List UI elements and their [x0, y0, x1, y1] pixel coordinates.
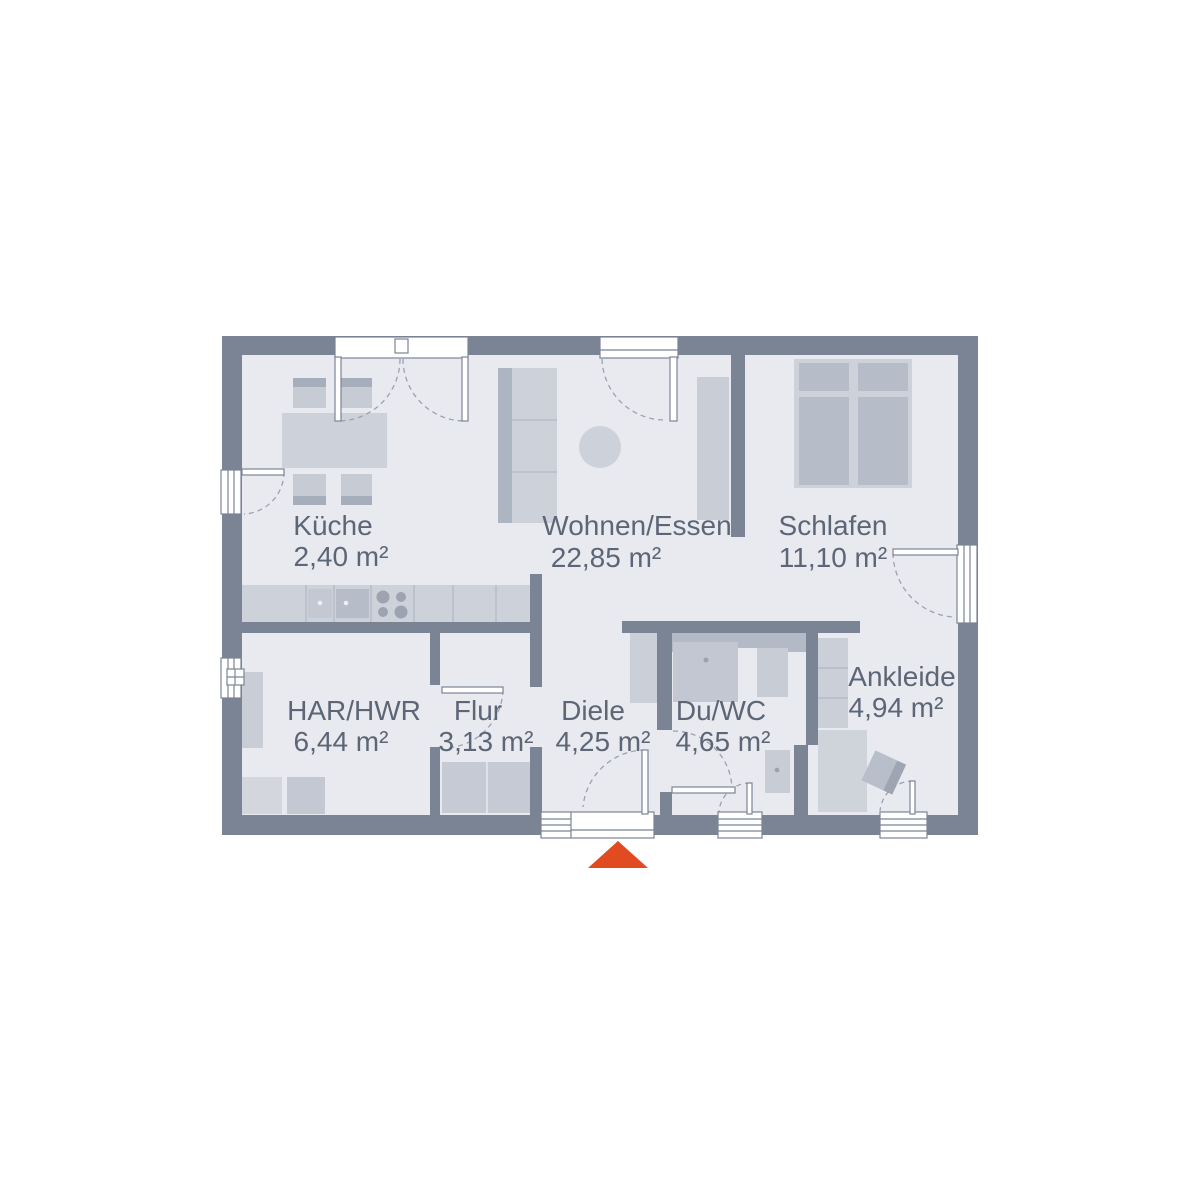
wall-outer-left — [222, 336, 242, 835]
wall-har-flur-upper — [430, 633, 440, 685]
wall-duwc-north — [622, 621, 860, 633]
basin-dot — [344, 601, 349, 606]
round-table — [579, 426, 621, 468]
room-label-wohnen-essen: Wohnen/Essen — [542, 512, 731, 540]
room-area-har-hwr: 6,44 m² — [294, 728, 389, 756]
wohnen-door-frame — [600, 337, 678, 358]
bed-pillow-right — [858, 363, 908, 391]
room-area-du-wc: 4,65 m² — [676, 728, 771, 756]
room-area-wohnen-essen: 22,85 m² — [551, 544, 662, 572]
har-appliance-2 — [287, 777, 325, 814]
flur-cabinet-2 — [488, 762, 530, 813]
kueche-window-frame — [221, 470, 241, 514]
wall-duwc-west — [657, 633, 672, 730]
room-label-diele: Diele — [561, 697, 625, 725]
sink-drain-dot — [318, 601, 323, 606]
kitchen-sink-basin — [336, 589, 369, 618]
bed-mattress-right — [858, 397, 908, 485]
wall-flur-east-lower — [530, 747, 542, 815]
wall-duwc-west-stub — [660, 792, 672, 815]
toilet-dot — [775, 768, 780, 773]
room-label-har-hwr: HAR/HWR — [287, 697, 421, 725]
duwc-window-leaf — [747, 783, 752, 814]
room-area-kueche: 2,40 m² — [294, 543, 389, 571]
diele-wardrobe — [630, 633, 657, 703]
room-area-diele: 4,25 m² — [556, 728, 651, 756]
har-tall-unit — [242, 672, 263, 748]
duwc-floor-notch — [738, 648, 757, 697]
wall-flur-east-upper — [530, 574, 542, 687]
wall-wohnen-schlafen — [731, 355, 745, 537]
sideboard — [697, 377, 729, 520]
ankleide-window-leaf — [910, 781, 915, 814]
room-area-schlafen: 11,10 m² — [779, 544, 887, 572]
room-label-kueche: Küche — [293, 512, 372, 540]
washbasin-cabinet — [757, 648, 788, 697]
floor-plan: Küche 2,40 m² Wohnen/Essen 22,85 m² Schl… — [0, 0, 1200, 1200]
flur-cabinet-1 — [442, 762, 486, 813]
south-entrance-arrow-icon — [588, 841, 648, 868]
shelf-unit-side — [498, 368, 512, 523]
ankleide-shelf — [818, 638, 848, 728]
entrance-door-leaf — [642, 750, 648, 814]
room-label-flur: Flur — [454, 697, 502, 725]
ankleide-wardrobe — [818, 730, 867, 812]
wohnen-door-leaf — [670, 357, 677, 421]
room-label-du-wc: Du/WC — [676, 697, 766, 725]
french-door-leaf-left — [335, 357, 341, 421]
room-area-flur: 3,13 m² — [439, 728, 534, 756]
shower — [673, 642, 738, 702]
french-door-center-symbol — [395, 339, 408, 353]
room-area-ankleide: 4,94 m² — [849, 694, 944, 722]
french-door-leaf-right — [462, 357, 468, 421]
wall-har-flur-lower — [430, 747, 440, 815]
bed-mattress-left — [799, 397, 849, 485]
floor-plan-drawing — [0, 0, 1200, 1200]
duwc-door-leaf — [672, 787, 735, 793]
kitchen-counter — [242, 585, 530, 622]
schlafen-door-frame — [957, 545, 977, 623]
schlafen-door-leaf — [893, 549, 958, 555]
wall-duwc-ankleide-upper — [806, 633, 818, 745]
wall-duwc-ankleide-lower — [794, 745, 808, 815]
room-label-schlafen: Schlafen — [779, 512, 888, 540]
har-door-leaf — [442, 687, 503, 693]
wall-kueche-south — [242, 621, 542, 633]
bed-pillow-left — [799, 363, 849, 391]
room-label-ankleide: Ankleide — [848, 663, 955, 691]
shelf-unit — [512, 368, 557, 523]
shower-drain-dot — [704, 658, 709, 663]
kueche-window-leaf — [242, 469, 284, 475]
har-appliance-1 — [242, 777, 282, 814]
